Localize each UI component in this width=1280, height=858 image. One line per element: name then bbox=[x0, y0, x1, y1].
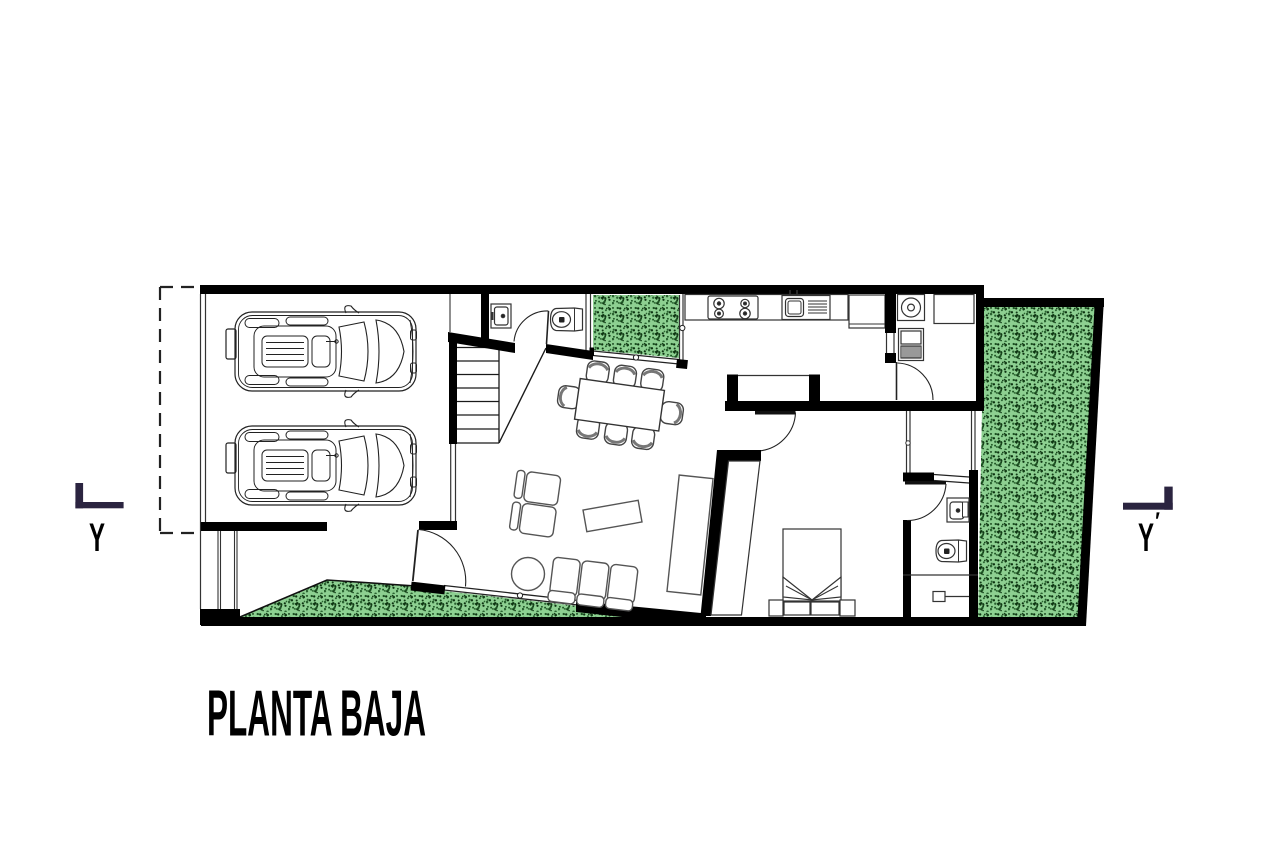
svg-text:Y: Y bbox=[89, 516, 105, 560]
svg-text:PLANTA BAJA: PLANTA BAJA bbox=[207, 677, 426, 750]
svg-text:Y: Y bbox=[1138, 516, 1154, 560]
